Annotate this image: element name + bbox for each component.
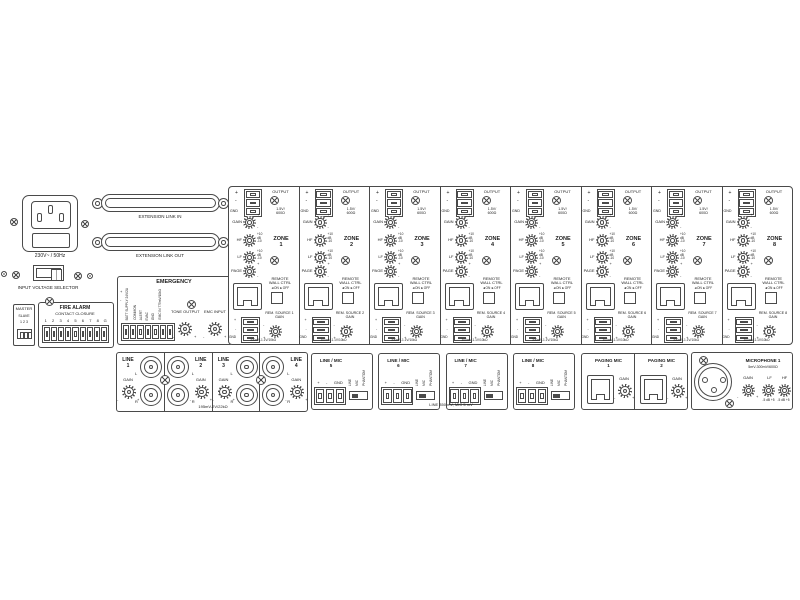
- rem-source-gain-knob[interactable]: [622, 325, 635, 338]
- rem-plus-label: +: [516, 318, 518, 322]
- rem-minus-label: -: [235, 327, 236, 331]
- rca-jack-left: [167, 356, 189, 378]
- switch-pos-line-label: LINE: [551, 379, 554, 386]
- switch-pos-phantom-label: PHANTOM: [498, 370, 501, 386]
- zone-hf-knob[interactable]: [525, 234, 538, 247]
- amplifier-rear-panel: 230V~ / 50Hz INPUT VOLTAGE SELECTOR MAST…: [0, 0, 800, 600]
- zone-strip: + - GND OUTPUT 1.5V/ 600Ω GAIN + - HF +1…: [723, 187, 793, 344]
- lf-label: LF: [230, 255, 242, 259]
- zone-page-knob[interactable]: [243, 265, 256, 278]
- knob-mark: -: [614, 396, 615, 400]
- zone-input-spec: 300mV-1.1V/10kΩ: [442, 339, 508, 343]
- knob-mark: -: [328, 274, 329, 278]
- knob-mark: -: [539, 274, 540, 278]
- rem-source-line2: GAIN: [331, 315, 370, 319]
- voltage-selector-switch[interactable]: [33, 265, 64, 281]
- knob-mark: -: [667, 396, 668, 400]
- output-gnd-label: GND: [512, 209, 520, 213]
- emergency-terminal-block: [121, 323, 175, 341]
- output-plus-label: +: [729, 191, 732, 197]
- remote-on-off-switch[interactable]: [271, 292, 283, 304]
- zone-input-spec: 300mV-1.1V/10kΩ: [230, 339, 296, 343]
- zone-title: ZONE 4: [477, 236, 509, 248]
- zone-gain-knob[interactable]: [596, 216, 609, 229]
- output-minus-label: -: [729, 199, 731, 205]
- on-off-label: ◄ON ►OFF: [615, 287, 651, 291]
- line-mic-phantom-switch[interactable]: [484, 391, 503, 400]
- screw-icon: [764, 196, 773, 205]
- line-mic-number: 7: [449, 363, 483, 368]
- line-gain-knob[interactable]: [290, 385, 304, 399]
- rca-jack-left: [236, 356, 258, 378]
- line-mic-number: 8: [516, 363, 550, 368]
- line-gain-label: GAIN: [215, 378, 233, 382]
- output-label: OUTPUT: [264, 190, 297, 194]
- switch-pos-mic-label: MIC: [491, 380, 494, 386]
- zone-hf-knob[interactable]: [737, 234, 750, 247]
- zone-hf-knob[interactable]: [314, 234, 327, 247]
- master-label: MASTER: [14, 307, 34, 311]
- plus-label: +: [519, 380, 521, 385]
- lf-label: LF: [653, 255, 665, 259]
- line-gain-knob[interactable]: [195, 385, 209, 399]
- hf-label: HF: [230, 238, 242, 242]
- terminal-number: 6: [79, 318, 86, 323]
- on-off-label: ◄ON ►OFF: [262, 287, 298, 291]
- emc-input-label: EMC INPUT: [201, 310, 229, 314]
- remote-on-off-switch[interactable]: [553, 292, 565, 304]
- emc-input-knob[interactable]: [208, 322, 222, 336]
- zone-lf-knob[interactable]: [314, 251, 327, 264]
- zone-strip: + - GND OUTPUT 1.5V/ 600Ω GAIN + - HF +1…: [441, 187, 512, 344]
- paging-gain-label: GAIN: [615, 377, 633, 381]
- screw-icon: [482, 256, 491, 265]
- output-minus-label: -: [447, 199, 449, 205]
- zone-input-spec: 300mV-1.1V/10kΩ: [724, 339, 790, 343]
- knob-mark: +: [305, 398, 307, 402]
- rem-plus-label: +: [446, 318, 448, 322]
- lf-scale: +10 dB -10: [469, 250, 474, 261]
- voltage-selector-handle[interactable]: [51, 269, 62, 281]
- switch-pos-phantom-label: PHANTOM: [430, 370, 433, 386]
- line-gain-knob[interactable]: [122, 385, 136, 399]
- zone-number: 7: [688, 242, 720, 248]
- knob-mark: -: [334, 323, 335, 327]
- rem-minus-label: -: [447, 327, 448, 331]
- output-label: OUTPUT: [687, 190, 720, 194]
- remote-wall-ctrl-jack: [515, 283, 544, 310]
- remote-wall-ctrl-jack: [304, 283, 333, 310]
- switch-pos-line-label: LINE: [484, 379, 487, 386]
- minus-label: -: [393, 380, 394, 385]
- left-channel-label: L: [192, 372, 194, 376]
- paging-gain-label: GAIN: [668, 377, 686, 381]
- rem-source-gain-knob[interactable]: [269, 325, 282, 338]
- knob-mark: +: [194, 335, 196, 339]
- remote-wall-ctrl-label: REMOTE WALL CTRL: [544, 277, 580, 286]
- rem-minus-label: -: [306, 327, 307, 331]
- remote-wall-ctrl-jack: [233, 283, 262, 310]
- zone-number: 3: [406, 242, 438, 248]
- knob-mark: -: [539, 225, 540, 229]
- hf-label: HF: [583, 238, 595, 242]
- output-plus-label: +: [376, 191, 379, 197]
- line-channel-title: LINE 4: [287, 358, 305, 369]
- zone-gain-knob[interactable]: [384, 216, 397, 229]
- output-spec-line2: 600Ω: [547, 211, 578, 215]
- emergency-terminal-label: BATT SUPPLY 24V/2A: [126, 288, 129, 320]
- rca-jack-right: [167, 384, 189, 406]
- output-gnd-label: GND: [230, 209, 238, 213]
- remote-wall-ctrl-jack: [656, 283, 685, 310]
- mic-lf-knob[interactable]: [762, 384, 775, 397]
- hf-scale: +10 dB -10: [680, 233, 685, 244]
- rem-plus-label: +: [587, 318, 589, 322]
- screw-icon: [81, 220, 89, 228]
- terminal-labels: + - GND: [516, 380, 548, 385]
- page-label: PAGE: [229, 269, 242, 273]
- zone-gain-knob[interactable]: [314, 216, 327, 229]
- line-input-channel: LINE 4 GAIN - + L R: [260, 353, 307, 411]
- zone-number: 8: [759, 242, 791, 248]
- screw-icon: [45, 297, 54, 306]
- output-spec-line2: 600Ω: [336, 211, 367, 215]
- knob-mark: -: [475, 323, 476, 327]
- knob-mark: -: [680, 225, 681, 229]
- right-channel-label: R: [287, 400, 290, 404]
- hf-scale: +10 dB -10: [610, 233, 615, 244]
- screw-icon: [693, 256, 702, 265]
- rem-source-gain-knob[interactable]: [481, 325, 494, 338]
- rca-jack-right: [236, 384, 258, 406]
- zone-gain-knob[interactable]: [455, 216, 468, 229]
- zone-page-knob[interactable]: [525, 265, 538, 278]
- zone-gain-knob[interactable]: [243, 216, 256, 229]
- rem-source-line2: GAIN: [472, 315, 511, 319]
- remote-on-off-switch[interactable]: [412, 292, 424, 304]
- screw-icon: [623, 256, 632, 265]
- rca-jack-left: [262, 356, 284, 378]
- zone-strip: + - GND OUTPUT 1.5V/ 600Ω GAIN + - HF +1…: [652, 187, 723, 344]
- dip-switch[interactable]: [17, 329, 32, 339]
- rem-source-gain-knob[interactable]: [763, 325, 776, 338]
- lf-label: LF: [583, 255, 595, 259]
- zone-lf-knob[interactable]: [666, 251, 679, 264]
- tone-output-knob[interactable]: [178, 322, 192, 336]
- remote-on-off-switch[interactable]: [624, 292, 636, 304]
- lf-scale: +10 dB -10: [751, 250, 756, 261]
- emergency-terminal-label: EMC IN 775mV/10kΩ: [159, 289, 162, 320]
- zone-lf-knob[interactable]: [455, 251, 468, 264]
- lf-label: LF: [301, 255, 313, 259]
- switch-pos-phantom-label: PHANTOM: [363, 370, 366, 386]
- screw-icon: [341, 256, 350, 265]
- remote-on-off-switch[interactable]: [765, 292, 777, 304]
- zone-gain-knob[interactable]: [525, 216, 538, 229]
- zone-page-knob[interactable]: [596, 265, 609, 278]
- line-mic-phantom-switch[interactable]: [551, 391, 570, 400]
- terminal-labels: + - GND: [314, 380, 346, 385]
- knob-mark: +: [398, 262, 400, 266]
- output-label: OUTPUT: [546, 190, 579, 194]
- screw-icon: [623, 196, 632, 205]
- knob-mark: +: [539, 213, 541, 217]
- terminal-number: 7: [87, 318, 94, 323]
- paging-mic-channel: PAGING MIC 1 GAIN - +: [582, 354, 635, 409]
- zone-page-knob[interactable]: [314, 265, 327, 278]
- microphone-spec: 5mV-300mV/600Ω: [734, 365, 792, 369]
- output-plus-label: +: [517, 191, 520, 197]
- remote-wall-ctrl-jack: [727, 283, 756, 310]
- page-label: PAGE: [723, 269, 736, 273]
- knob-mark: +: [685, 396, 687, 400]
- zone-strip: + - GND OUTPUT 1.5V/ 600Ω GAIN + - HF +1…: [582, 187, 653, 344]
- output-label: OUTPUT: [405, 190, 438, 194]
- output-spec-line2: 600Ω: [759, 211, 790, 215]
- knob-mark: -: [737, 395, 738, 399]
- zone-hf-knob[interactable]: [455, 234, 468, 247]
- paging-mic-title: PAGING MIC 1: [584, 358, 633, 368]
- gnd-label: GND: [334, 380, 343, 385]
- dip-lever[interactable]: [28, 332, 33, 340]
- gain-label: GAIN: [511, 220, 524, 224]
- terminal-number: 1: [42, 318, 49, 323]
- output-plus-label: +: [658, 191, 661, 197]
- switch-pos-line-label: LINE: [416, 379, 419, 386]
- screw-icon: [482, 196, 491, 205]
- right-channel-label: R: [231, 400, 234, 404]
- zone-hf-knob[interactable]: [596, 234, 609, 247]
- output-minus-label: -: [306, 199, 308, 205]
- remote-wall-ctrl-label: REMOTE WALL CTRL: [615, 277, 651, 286]
- zone-page-knob[interactable]: [384, 265, 397, 278]
- output-gnd-label: GND: [442, 209, 450, 213]
- rem-source-line2: GAIN: [683, 315, 722, 319]
- gain-label: GAIN: [370, 220, 383, 224]
- fire-alarm-block: FIRE ALARM CONTACT CLOSURE 1 2 3 4 5 6 7…: [38, 302, 114, 348]
- remote-on-off-switch[interactable]: [342, 292, 354, 304]
- rem-plus-label: +: [657, 318, 659, 322]
- on-off-label: ◄ON ►OFF: [544, 287, 580, 291]
- line-input-channel: LINE 1 GAIN - + L R: [117, 353, 165, 411]
- knob-mark: -: [469, 225, 470, 229]
- knob-mark: -: [616, 323, 617, 327]
- mic-gain-knob[interactable]: [742, 384, 755, 397]
- fuse-drawer: [32, 233, 70, 248]
- line-channel-title: LINE 2: [192, 358, 210, 369]
- knob-mark: +: [398, 213, 400, 217]
- lf-scale: +10 dB -10: [539, 250, 544, 261]
- line-gain-knob[interactable]: [218, 385, 232, 399]
- screw-icon: [725, 399, 734, 408]
- rem-source-gain-knob[interactable]: [551, 325, 564, 338]
- rem-source-gain-knob[interactable]: [410, 325, 423, 338]
- rca-jack-right: [262, 384, 284, 406]
- remote-wall-ctrl-label: REMOTE WALL CTRL: [474, 277, 510, 286]
- zone-number: 4: [477, 242, 509, 248]
- fire-alarm-terminal-numbers: 1 2 3 4 5 6 7 8 G: [42, 318, 109, 323]
- rem-source-gain-knob[interactable]: [340, 325, 353, 338]
- knob-mark: +: [610, 262, 612, 266]
- screw-icon: [552, 196, 561, 205]
- paging-gain-knob[interactable]: [618, 384, 632, 398]
- terminal-number: G: [102, 318, 109, 323]
- gain-label: GAIN: [652, 220, 665, 224]
- eq-bot: -10: [328, 240, 333, 244]
- gnd-label: GND: [536, 380, 545, 385]
- zone-page-knob[interactable]: [455, 265, 468, 278]
- line-input-channel: LINE 3 GAIN - + L R: [213, 353, 261, 411]
- screw-icon: [699, 356, 708, 365]
- line-gain-label: GAIN: [192, 378, 210, 382]
- zone-title: ZONE 8: [759, 236, 791, 248]
- zone-strip: + - GND OUTPUT 1.5V/ 600Ω GAIN + - HF +1…: [370, 187, 441, 344]
- mic-hf-scale: -5 dB +5: [774, 399, 793, 403]
- hf-label: HF: [653, 238, 665, 242]
- output-minus-label: -: [517, 199, 519, 205]
- lf-label: LF: [512, 255, 524, 259]
- lf-scale: +10 dB -10: [610, 250, 615, 261]
- rem-plus-label: +: [234, 318, 236, 322]
- switch-pos-phantom-label: PHANTOM: [565, 370, 568, 386]
- rem-source-line2: GAIN: [754, 315, 793, 319]
- line-mic-title: LINE / MIC 8: [516, 358, 550, 368]
- extension-link-in-connector: [101, 194, 220, 212]
- page-label: PAGE: [582, 269, 595, 273]
- emergency-terminal-label: GND: [152, 313, 155, 320]
- rem-plus-label: +: [305, 318, 307, 322]
- rem-source-label: REM. SOURCE 8 GAIN: [754, 311, 793, 319]
- switch-pos-mic-label: MIC: [356, 380, 359, 386]
- line-mic-terminal-block: [516, 387, 548, 405]
- output-spec: 1.5V/ 600Ω: [618, 207, 649, 215]
- zone-page-knob[interactable]: [666, 265, 679, 278]
- mic-hf-label: HF: [778, 376, 791, 380]
- lf-label: LF: [724, 255, 736, 259]
- eq-bot: -10: [680, 240, 685, 244]
- eq-bot: -10: [610, 240, 615, 244]
- knob-mark: -: [398, 274, 399, 278]
- line-mic-number: 5: [314, 363, 348, 368]
- zone-hf-knob[interactable]: [243, 234, 256, 247]
- batt-plus-label: +: [120, 290, 122, 294]
- lf-scale: +10 dB -10: [257, 250, 262, 261]
- remote-wall-ctrl-label: REMOTE WALL CTRL: [685, 277, 721, 286]
- minus-label: -: [528, 380, 529, 385]
- line-mic-title: LINE / MIC 6: [381, 358, 415, 368]
- screw-icon: [160, 375, 170, 385]
- remote-wall-ctrl-label: REMOTE WALL CTRL: [333, 277, 369, 286]
- remote-wall-ctrl-jack: [586, 283, 615, 310]
- mains-spec-label: 230V~ / 50Hz: [14, 254, 86, 260]
- iec-power-inlet: [22, 195, 78, 252]
- zone-page-knob[interactable]: [737, 265, 750, 278]
- zone-lf-knob[interactable]: [737, 251, 750, 264]
- page-label: PAGE: [370, 269, 383, 273]
- lf-label: LF: [442, 255, 454, 259]
- output-spec-line2: 600Ω: [688, 211, 719, 215]
- plus-label: +: [385, 380, 387, 385]
- on-off-label: ◄ON ►OFF: [403, 287, 439, 291]
- output-spec-line2: 600Ω: [477, 211, 508, 215]
- rem-source-line2: GAIN: [260, 315, 299, 319]
- paging-gain-knob[interactable]: [671, 384, 685, 398]
- zone-input-spec: 300mV-1.1V/10kΩ: [512, 339, 578, 343]
- line-inputs-spec: 195mV-2V/22kΩ: [163, 405, 263, 409]
- rca-jack-right: [140, 384, 162, 406]
- zone-title: ZONE 2: [336, 236, 368, 248]
- rem-source-label: REM. SOURCE 2 GAIN: [331, 311, 370, 319]
- zone-strip: + - GND OUTPUT 1.5V/ 600Ω GAIN + - HF +1…: [511, 187, 582, 344]
- zone-lf-knob[interactable]: [243, 251, 256, 264]
- gain-label: GAIN: [441, 220, 454, 224]
- terminal-number: 8: [94, 318, 101, 323]
- slave-label: SLAVE: [14, 314, 34, 318]
- terminal-labels: + - GND: [381, 380, 413, 385]
- left-channel-label: L: [231, 372, 233, 376]
- gain-label: GAIN: [723, 220, 736, 224]
- paging-mic-jack: [640, 375, 667, 404]
- remote-on-off-switch[interactable]: [483, 292, 495, 304]
- screw-icon: [12, 271, 20, 279]
- screw-icon: [1, 271, 7, 277]
- screw-icon: [411, 256, 420, 265]
- terminal-number: 2: [49, 318, 56, 323]
- zone-lf-knob[interactable]: [596, 251, 609, 264]
- line-mic-phantom-switch[interactable]: [416, 391, 435, 400]
- zone-gain-knob[interactable]: [666, 216, 679, 229]
- tone-output-text: TONE OUTPUT: [171, 310, 199, 314]
- extension-link-out-label: EXTENSION LINK OUT: [110, 253, 210, 258]
- zone-hf-knob[interactable]: [384, 234, 397, 247]
- zone-hf-knob[interactable]: [666, 234, 679, 247]
- microphone-title: MICROPHONE 1: [734, 358, 792, 363]
- line-mic-channel: LINE / MIC 8 LINE MIC PHANTOM + - GND: [513, 353, 575, 410]
- plus-label: +: [452, 380, 454, 385]
- emergency-terminal-label: ALERT: [140, 310, 143, 320]
- line-mic-phantom-switch[interactable]: [349, 391, 368, 400]
- rem-source-label: REM. SOURCE 4 GAIN: [472, 311, 511, 319]
- hf-label: HF: [301, 238, 313, 242]
- line-mic-title: LINE / MIC 7: [449, 358, 483, 368]
- mic-hf-knob[interactable]: [778, 384, 791, 397]
- zone-lf-knob[interactable]: [525, 251, 538, 264]
- rem-source-line2: GAIN: [613, 315, 652, 319]
- knob-mark: +: [328, 262, 330, 266]
- screw-icon: [10, 218, 18, 226]
- page-label: PAGE: [441, 269, 454, 273]
- zone-gain-knob[interactable]: [737, 216, 750, 229]
- remote-on-off-switch[interactable]: [694, 292, 706, 304]
- output-label: OUTPUT: [335, 190, 368, 194]
- output-spec: 1.5V/ 600Ω: [688, 207, 719, 215]
- switch-pos-mic-label: MIC: [558, 380, 561, 386]
- iec-socket-face: [31, 201, 71, 229]
- knob-mark: -: [404, 323, 405, 327]
- knob-mark: +: [680, 213, 682, 217]
- rem-source-label: REM. SOURCE 3 GAIN: [401, 311, 440, 319]
- zone-lf-knob[interactable]: [384, 251, 397, 264]
- knob-mark: -: [751, 225, 752, 229]
- xlr-pin: [702, 377, 708, 383]
- rem-source-label: REM. SOURCE 6 GAIN: [613, 311, 652, 319]
- hf-scale: +10 dB -10: [328, 233, 333, 244]
- paging-number: 1: [584, 363, 633, 368]
- paging-mic-jack: [587, 375, 614, 404]
- output-spec-line2: 600Ω: [618, 211, 649, 215]
- line-number: 1: [119, 364, 137, 370]
- rem-source-gain-knob[interactable]: [692, 325, 705, 338]
